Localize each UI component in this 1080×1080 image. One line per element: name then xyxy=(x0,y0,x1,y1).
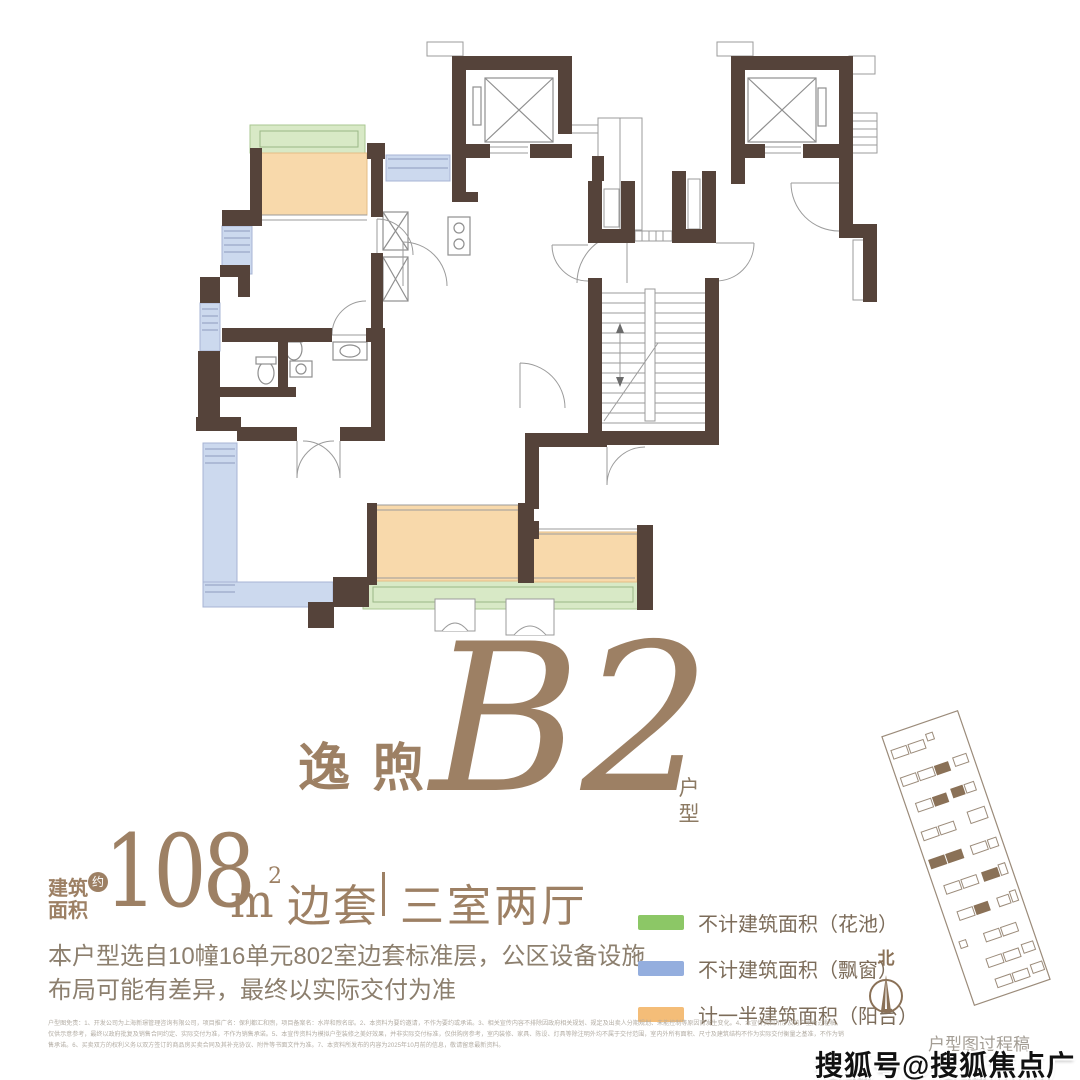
unit-model: B2 xyxy=(430,618,711,823)
bathroom-fixtures xyxy=(256,335,367,384)
area-unit-sup: 2 xyxy=(268,864,282,889)
blue-swatch xyxy=(638,961,684,976)
floorplan-poster: 逸煦 B2 户 型 建筑 面积 约 108 m 2 边套 三室两厅 本户型选自1… xyxy=(0,0,1080,1080)
site-plan xyxy=(868,700,1068,1020)
watermark: 搜狐号@搜狐焦点广安站 xyxy=(815,1044,1080,1080)
disclaimer-line: 户型图免责：1、开发公司为上海新璟管理咨询有限公司，项目推广名：保利都汇和煦，项… xyxy=(48,1018,846,1029)
area-label: 建筑 面积 xyxy=(48,878,88,922)
green-swatch xyxy=(638,915,684,930)
disclaimer-line: 仅供示意参考，最终以政府批复及销售合同约定、实际交付为准，不作为销售承诺。5、本… xyxy=(48,1029,846,1040)
project-name: 逸煦 xyxy=(298,726,446,801)
elevator-cab-right xyxy=(748,78,826,142)
unit-position-tag: 边套 xyxy=(287,870,379,934)
disclaimer: 户型图免责：1、开发公司为上海新璟管理咨询有限公司，项目推广名：保利都汇和煦，项… xyxy=(48,1018,846,1051)
description-line: 本户型选自10幢16单元802室边套标准层，公区设备设施 xyxy=(48,940,645,974)
disclaimer-line: 售承诺。6、买卖双方的权利义务以双方签订的商品房买卖合同及其补充协议、附件等书面… xyxy=(48,1040,846,1051)
area-label-line1: 建筑 xyxy=(48,878,88,900)
description-line: 布局可能有差异，最终以实际交付为准 xyxy=(48,974,645,1008)
floor-plan xyxy=(190,25,890,645)
stairwell-treads xyxy=(602,289,705,423)
divider-bar xyxy=(382,872,385,916)
kitchen-counters xyxy=(383,212,470,301)
unit-suffix-char: 户 xyxy=(676,776,702,802)
area-label-line2: 面积 xyxy=(48,900,88,922)
room-layout: 三室两厅 xyxy=(400,870,588,934)
unit-description: 本户型选自10幢16单元802室边套标准层，公区设备设施 布局可能有差异，最终以… xyxy=(48,940,645,1008)
elevator-cab-left xyxy=(473,78,553,142)
unit-suffix-char: 型 xyxy=(676,802,702,828)
unit-suffix: 户 型 xyxy=(676,776,702,828)
